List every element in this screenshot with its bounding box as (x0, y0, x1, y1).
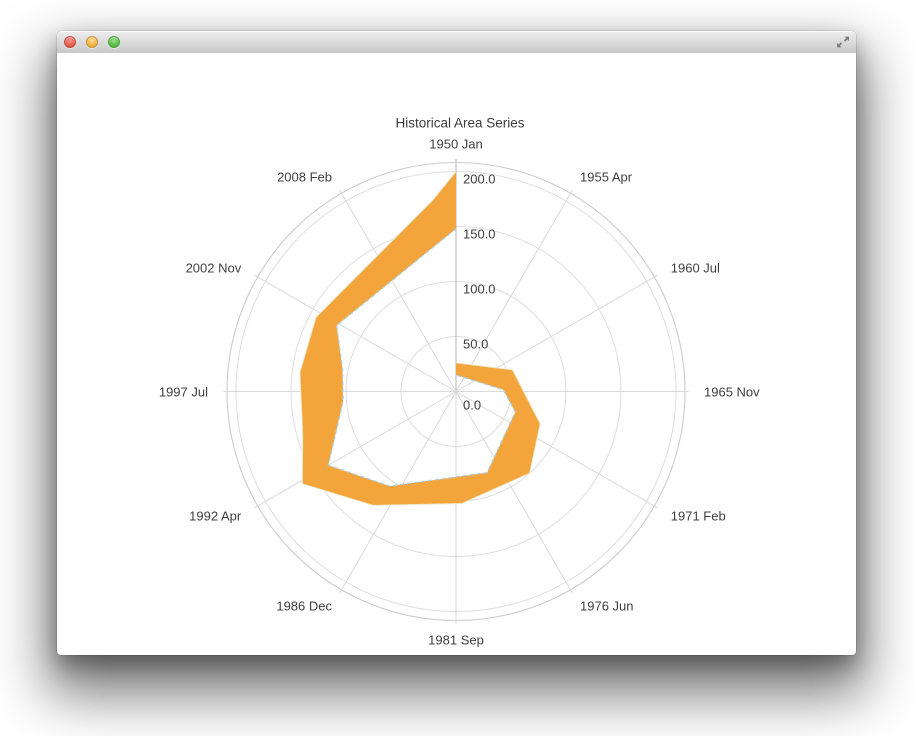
category-label: 1976 Jun (580, 599, 634, 614)
area-series-band (300, 172, 540, 506)
category-label: 1997 Jul (159, 384, 208, 399)
category-label: 2002 Nov (186, 260, 242, 275)
zoom-button[interactable] (108, 36, 120, 48)
category-label: 1981 Sep (428, 632, 484, 647)
category-label: 1986 Dec (276, 599, 332, 614)
category-label: 1965 Nov (704, 384, 760, 399)
category-label: 1971 Feb (671, 508, 726, 523)
category-label: 1955 Apr (580, 169, 632, 184)
resize-icon[interactable] (835, 34, 851, 50)
app-window: Historical Area Series 0.050.0100.0150.0… (57, 31, 856, 655)
radial-tick-label: 50.0 (463, 336, 488, 351)
category-label: 1992 Apr (189, 508, 241, 523)
category-label: 1950 Jan (429, 136, 483, 151)
radial-tick-label: 0.0 (463, 398, 481, 413)
radial-tick-label: 150.0 (463, 226, 496, 241)
category-label: 2008 Feb (277, 169, 332, 184)
radial-tick-label: 100.0 (463, 281, 496, 296)
minimize-button[interactable] (86, 36, 98, 48)
window-titlebar[interactable] (57, 31, 856, 54)
chart-title: Historical Area Series (395, 116, 524, 131)
radial-tick-label: 200.0 (463, 171, 496, 186)
category-label: 1960 Jul (671, 260, 720, 275)
window-controls (64, 36, 120, 48)
close-button[interactable] (64, 36, 76, 48)
chart-container: Historical Area Series 0.050.0100.0150.0… (57, 53, 856, 655)
area-inner-edge (328, 229, 515, 486)
